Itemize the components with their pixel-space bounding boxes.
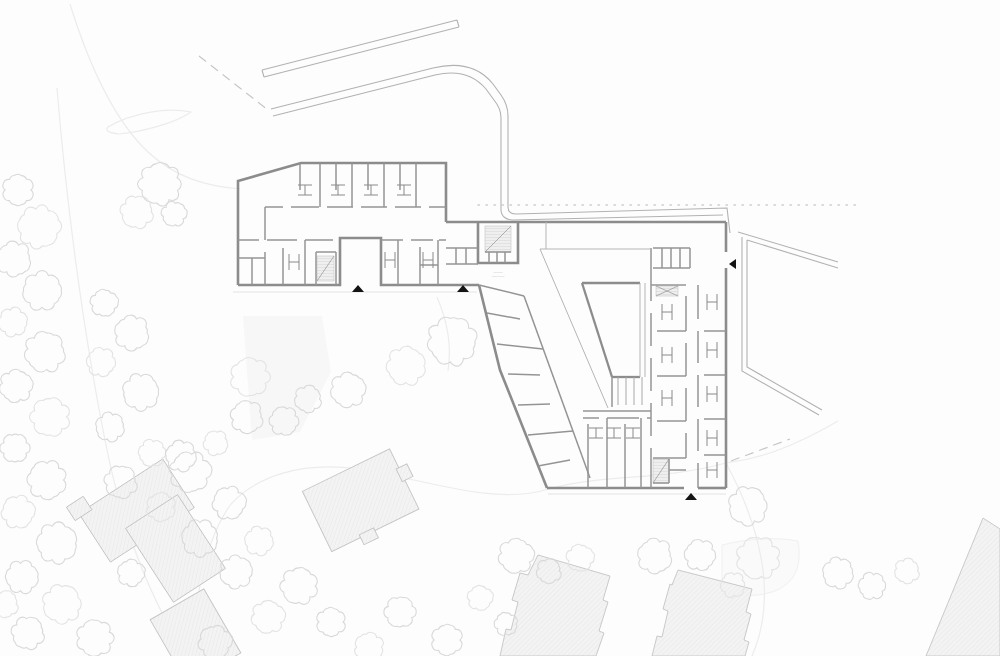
tree (18, 205, 62, 249)
fixture-mark (589, 428, 603, 438)
tree (432, 624, 462, 655)
lawn-patch (243, 316, 331, 440)
fixture-mark (707, 386, 717, 402)
tree (0, 434, 30, 462)
tree (24, 332, 65, 372)
ramps-layer (262, 20, 858, 415)
fixture-mark (707, 294, 717, 310)
tree (5, 561, 38, 594)
tree (220, 555, 252, 589)
entrance-arrow-east (729, 259, 736, 269)
tree (115, 315, 149, 351)
tree (36, 522, 76, 565)
exterior-wall (238, 238, 479, 285)
tree (245, 526, 274, 555)
tree (317, 607, 345, 636)
fixture-mark (707, 342, 717, 358)
tree (498, 538, 534, 573)
partition-wall (524, 296, 590, 478)
tree (638, 538, 672, 574)
upper-ramp-edge-2 (264, 27, 459, 77)
traffic-island (107, 110, 191, 134)
neighbor-buildings (66, 445, 1000, 656)
tree (11, 617, 44, 649)
tree (43, 585, 81, 624)
fixture-mark (385, 252, 395, 268)
tree (166, 440, 197, 472)
fixture-mark (662, 304, 672, 320)
tree (0, 307, 27, 337)
tree (355, 632, 383, 656)
east-terrace-edge-3 (742, 237, 819, 415)
partition-wall (538, 460, 570, 466)
site-plan-page: ——— ———— (0, 0, 1000, 656)
neighbor-block-south-1 (500, 555, 610, 656)
neighbor-house-center (302, 445, 430, 559)
fixture-mark (626, 428, 640, 438)
neighbor-house-southwest (150, 589, 241, 656)
boundary-dashed-nw (199, 56, 268, 110)
partition-wall (508, 374, 540, 375)
tree (77, 620, 114, 656)
tree (23, 271, 62, 311)
tree (1, 495, 35, 528)
tree (0, 369, 33, 402)
fixture-mark (397, 185, 411, 195)
exterior-wall (479, 285, 547, 488)
partition-wall (518, 404, 550, 405)
drive-ramp-inner (273, 73, 723, 220)
tree (169, 452, 212, 492)
tree (90, 289, 118, 316)
partition-wall (497, 344, 543, 349)
fixture-mark (331, 185, 345, 195)
tree (212, 486, 246, 519)
fixture-mark (289, 254, 299, 270)
tree (123, 374, 159, 412)
partition-wall (528, 431, 573, 435)
tree (895, 558, 919, 583)
tree (331, 372, 366, 408)
tree (467, 585, 493, 610)
tree (118, 559, 145, 586)
tree (729, 487, 767, 527)
tree (120, 196, 153, 228)
tree (30, 398, 70, 436)
hall-wall (582, 283, 612, 377)
tree (280, 568, 317, 605)
contour-line (437, 297, 449, 371)
tree (203, 431, 227, 455)
fixture-mark (707, 430, 717, 446)
fixture-mark (662, 347, 672, 363)
neighbor-block-corner (926, 518, 1000, 656)
entrance-arrow-west (352, 285, 364, 292)
tree (138, 163, 182, 206)
site-plan-canvas: ——— ———— (0, 0, 1000, 656)
fixture-mark (707, 462, 717, 478)
tree (27, 461, 66, 500)
entrance-markers (352, 259, 736, 500)
stair-annotation-line2: ———— (492, 274, 506, 278)
glazing-line (540, 249, 608, 408)
tree (384, 597, 416, 627)
tree (858, 572, 885, 599)
tree (427, 317, 477, 366)
tree (386, 346, 425, 385)
tree (0, 241, 30, 277)
fixture-mark (607, 428, 621, 438)
partition-wall (487, 313, 520, 319)
tree (823, 557, 853, 589)
east-terrace-edge-2 (747, 240, 838, 410)
tree (3, 174, 33, 205)
fixture-mark (662, 390, 672, 406)
exterior-wall (238, 163, 446, 285)
fixture-mark (364, 185, 378, 195)
east-terrace-edge-1 (738, 232, 838, 262)
boundary-dashed-se (731, 439, 790, 461)
tree (684, 540, 715, 571)
road-north-west (70, 4, 240, 189)
tree (0, 591, 18, 618)
partition-wall (479, 285, 524, 296)
tree (251, 600, 285, 633)
